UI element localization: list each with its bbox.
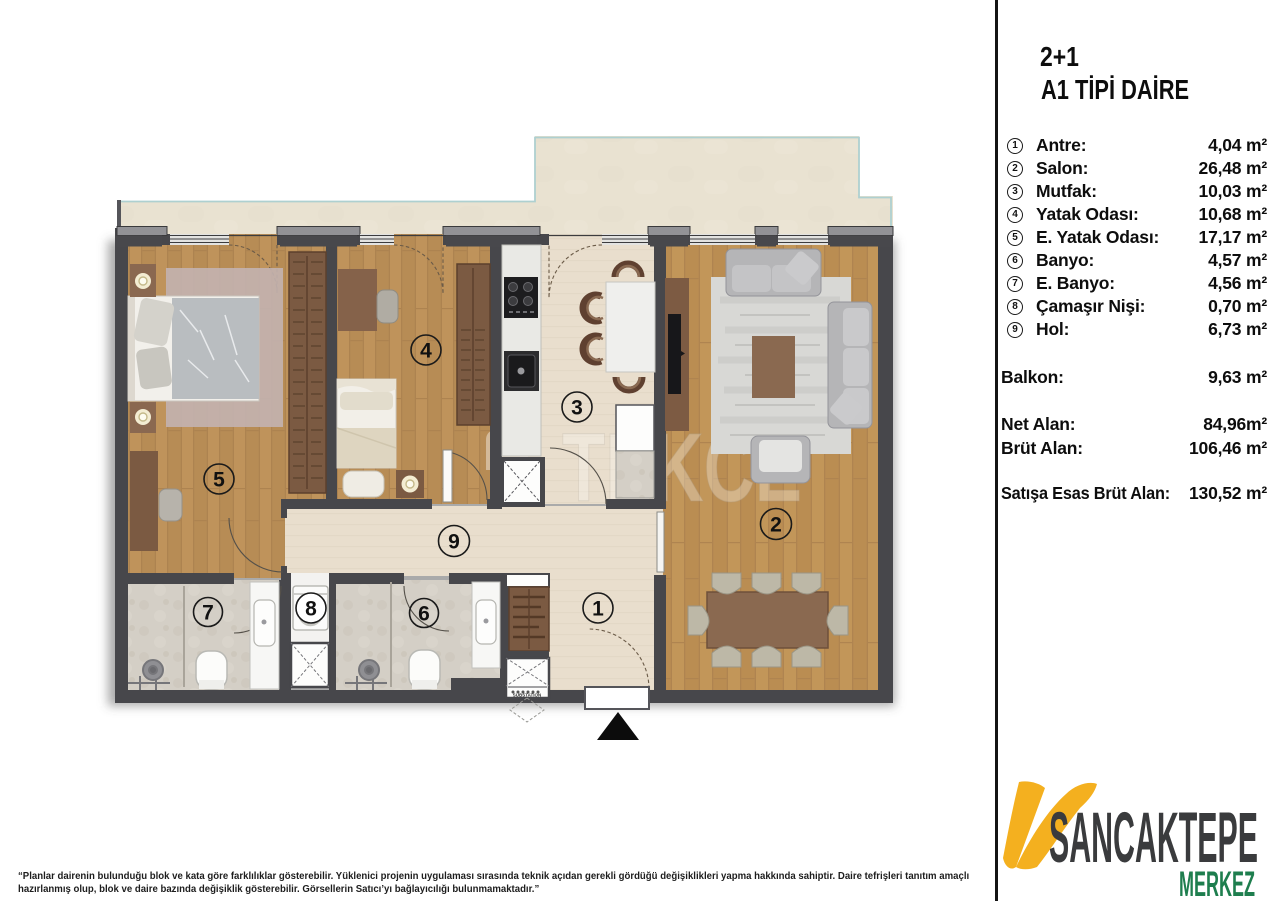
svg-text:MERKEZ: MERKEZ bbox=[1179, 865, 1255, 904]
svg-text:3: 3 bbox=[571, 397, 583, 420]
svg-text:6: 6 bbox=[418, 603, 430, 626]
svg-text:1: 1 bbox=[592, 598, 604, 621]
svg-text:8: 8 bbox=[305, 598, 317, 621]
svg-text:7: 7 bbox=[202, 602, 214, 625]
svg-text:5: 5 bbox=[213, 469, 225, 492]
svg-text:9: 9 bbox=[448, 531, 460, 554]
svg-text:2: 2 bbox=[770, 514, 782, 537]
svg-text:SUBSTATION: SUBSTATION bbox=[513, 693, 542, 698]
svg-text:4: 4 bbox=[420, 340, 432, 363]
